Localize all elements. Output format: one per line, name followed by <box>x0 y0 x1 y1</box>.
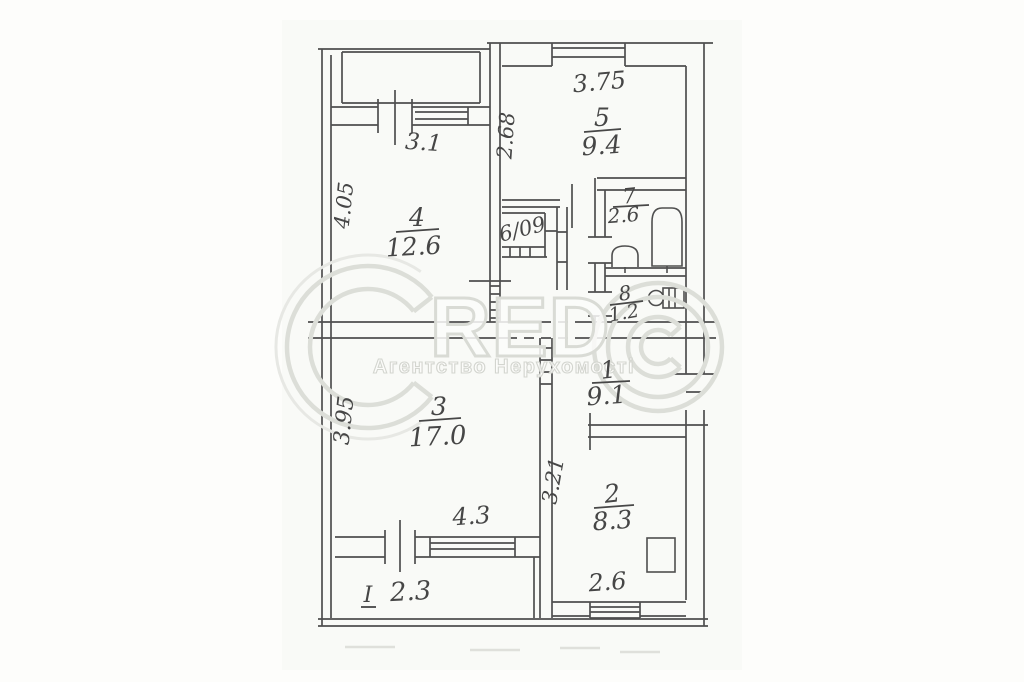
exterior-right-wall <box>686 43 704 626</box>
dim-room2-left: 3.21 <box>537 456 569 506</box>
dim-balcony-value: 2.3 <box>388 576 432 608</box>
exterior-bottom-wall <box>318 619 708 626</box>
room5-bottom-wall <box>502 200 560 207</box>
watermark-subtitle: Агентство Нерухомості <box>373 356 635 378</box>
room2-area: 8.3 <box>592 505 634 537</box>
room3-area: 17.0 <box>408 421 467 454</box>
ventilation-shaft <box>647 538 675 572</box>
top-balcony-railing <box>342 52 480 103</box>
room5-window <box>552 43 625 66</box>
sink-icon <box>612 246 638 273</box>
room6-label: 6/09 <box>497 212 549 247</box>
room4-window <box>415 107 468 125</box>
dim-room3-bottom: 4.3 <box>450 501 491 532</box>
dim-room4-left: 4.05 <box>330 181 359 231</box>
room4-area: 12.6 <box>385 231 442 263</box>
room3-bottom-wall <box>335 537 540 557</box>
dim-room5-top: 3.75 <box>571 66 627 99</box>
room3-balcony-door <box>385 520 415 572</box>
dim-room4-top: 3.1 <box>404 129 442 157</box>
room1-area: 9.1 <box>586 380 628 412</box>
room2-window <box>590 602 640 618</box>
bathtub-icon <box>652 208 682 273</box>
dim-room3-left: 3.95 <box>330 395 360 446</box>
room2-number: 2 <box>602 478 622 509</box>
room4-number: 4 <box>408 203 425 232</box>
room4-window-wall <box>331 107 490 125</box>
watermark-copyright-c <box>628 317 680 377</box>
room5-area: 9.4 <box>581 130 623 162</box>
room3-number: 3 <box>431 392 447 421</box>
floor-plan-drawing: RED Агентство Нерухомості 1 9.1 2 8.3 <box>0 0 1024 682</box>
dim-balcony-mark: I <box>363 583 374 608</box>
dim-room5-left: 2.68 <box>492 111 519 160</box>
bath-wc-divider <box>605 268 686 276</box>
scanned-floor-plan: RED Агентство Нерухомості 1 9.1 2 8.3 <box>0 0 1024 682</box>
room3-window <box>430 537 515 557</box>
corridor-wall <box>557 207 567 290</box>
room7-area: 2.6 <box>606 202 641 228</box>
watermark-letter-c <box>287 266 432 428</box>
bath-top-wall <box>597 178 686 190</box>
dim-room2-bottom: 2.6 <box>586 567 627 598</box>
scan-artifacts <box>345 647 660 652</box>
room2-bottom-wall <box>552 602 686 616</box>
room5-number: 5 <box>594 103 610 132</box>
hall-room2-wall <box>588 425 708 437</box>
